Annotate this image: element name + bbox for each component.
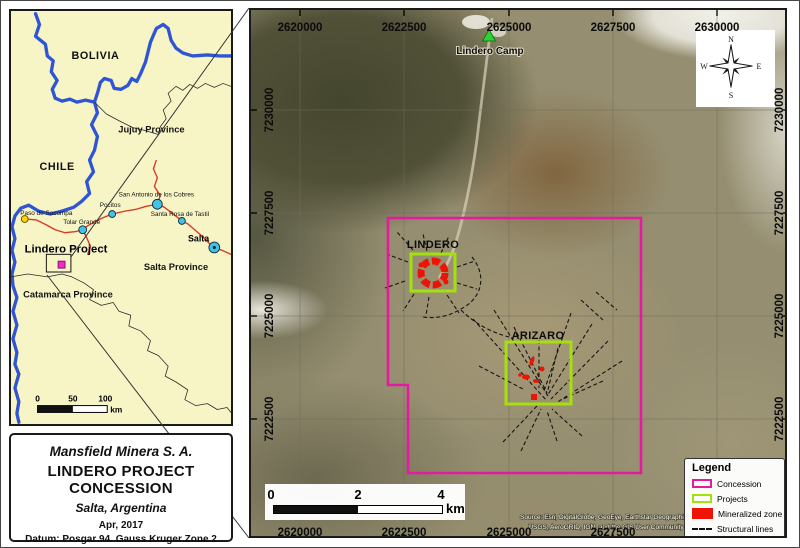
x-tick-bottom: 2620000 <box>278 527 323 538</box>
label-paso-de-socompa: Paso de Socompa <box>20 210 73 217</box>
compass-rose: N S E W <box>696 30 775 107</box>
compass-w: W <box>700 62 708 71</box>
inset-scale-100: 100 <box>98 394 112 404</box>
label-lindero: LINDERO <box>407 239 459 251</box>
legend: Legend Concession Projects Mineralized z… <box>684 458 785 538</box>
lindero-project-marker <box>58 261 65 268</box>
label-santa-rosa: Santa Rosa de Tastil <box>151 211 209 218</box>
inset-map-canvas: BOLIVIA CHILE Jujuy Province Salta Provi… <box>11 11 231 424</box>
label-chile: CHILE <box>39 161 74 173</box>
x-tick-top: 2625000 <box>487 22 532 34</box>
main-satellite-map: Source: Esri, DigitalGlobe, GeoEye, Eart… <box>249 8 787 538</box>
mineralized-speck <box>444 280 449 285</box>
y-tick-left: 7227500 <box>264 191 276 236</box>
scale-unit: km <box>446 501 465 516</box>
town-dot-santa-rosa <box>178 218 185 225</box>
label-pocitos: Pocitos <box>100 202 121 209</box>
border-chile-bolivia-line <box>36 14 231 102</box>
label-salta-city: Salta <box>188 234 209 244</box>
scalebar-track <box>273 505 443 514</box>
y-tick-right: 7227500 <box>774 191 786 236</box>
y-tick-left: 7222500 <box>264 397 276 442</box>
map-location: Salta, Argentina <box>11 501 231 515</box>
scalebar-fill <box>274 506 358 513</box>
inset-scalebar-fill <box>38 406 73 413</box>
x-tick-bottom: 2627500 <box>591 527 636 538</box>
label-tolar-grande: Tolar Grande <box>63 219 100 226</box>
label-bolivia: BOLIVIA <box>72 50 120 62</box>
town-dot-san-antonio <box>152 199 162 209</box>
map-title-line2: CONCESSION <box>11 480 231 497</box>
y-tick-right: 7225000 <box>774 294 786 339</box>
inset-scale-50: 50 <box>68 394 78 404</box>
company-name: Mansfield Minera S. A. <box>11 444 231 459</box>
x-tick-top: 2630000 <box>695 22 740 34</box>
label-jujuy-province: Jujuy Province <box>118 125 184 135</box>
mineralized-zone-swatch <box>692 508 713 519</box>
inset-scale-0: 0 <box>35 394 40 404</box>
city-dot-salta-ring <box>213 246 216 249</box>
label-lindero-camp: Lindero Camp <box>456 46 523 57</box>
legend-item: Structural lines <box>685 521 784 536</box>
structural-lines-swatch <box>692 528 712 530</box>
figure-lindero-concession-map: BOLIVIA CHILE Jujuy Province Salta Provi… <box>0 0 800 548</box>
label-san-antonio: San Antonio de los Cobres <box>119 191 195 198</box>
attribution-line1: Source: Esri, DigitalGlobe, GeoEye, Eart… <box>520 514 692 521</box>
label-arizaro: ARIZARO <box>512 330 565 342</box>
scale-0: 0 <box>265 487 277 502</box>
map-date: Apr, 2017 <box>11 520 231 531</box>
inset-scalebar: 0 50 100 km <box>35 394 122 415</box>
compass-e: E <box>757 62 762 71</box>
legend-item-label: Mineralized zone <box>718 509 782 519</box>
map-title-line1: LINDERO PROJECT <box>11 463 231 480</box>
x-tick-bottom: 2625000 <box>487 527 532 538</box>
compass-n: N <box>728 35 734 44</box>
y-tick-right: 7222500 <box>774 397 786 442</box>
legend-item: Projects <box>685 491 784 506</box>
scale-4: 4 <box>435 487 447 502</box>
inset-locator-map: BOLIVIA CHILE Jujuy Province Salta Provi… <box>9 9 233 426</box>
label-lindero-project: Lindero Project <box>25 243 108 255</box>
y-tick-right: 7230000 <box>774 88 786 133</box>
x-tick-top: 2620000 <box>278 22 323 34</box>
legend-item: Mineralized zone <box>685 506 784 521</box>
border-chile-argentina-line <box>12 102 97 422</box>
town-dot-tolar-grande <box>79 226 87 234</box>
mineralized-speck <box>419 263 424 268</box>
label-catamarca-province: Catamarca Province <box>23 290 113 300</box>
compass-s: S <box>729 91 733 100</box>
x-tick-bottom: 2622500 <box>382 527 427 538</box>
title-block: Mansfield Minera S. A. LINDERO PROJECT C… <box>9 433 233 542</box>
projects-swatch <box>692 494 712 503</box>
legend-item-label: Concession <box>717 479 761 489</box>
inset-scale-unit: km <box>110 404 122 414</box>
scale-2: 2 <box>352 487 364 502</box>
x-tick-top: 2622500 <box>382 22 427 34</box>
y-tick-left: 7230000 <box>264 88 276 133</box>
concession-swatch <box>692 479 712 488</box>
legend-item: Concession <box>685 476 784 491</box>
legend-title: Legend <box>685 459 784 476</box>
town-dot-pocitos <box>109 211 116 218</box>
map-datum: Datum: Posgar 94. Gauss Kruger Zone 2 <box>11 534 231 545</box>
legend-item-label: Structural lines <box>717 524 773 534</box>
map-scalebar: 0 2 4 km <box>265 484 465 520</box>
y-tick-left: 7225000 <box>264 294 276 339</box>
legend-item-label: Projects <box>717 494 748 504</box>
label-salta-province: Salta Province <box>144 262 208 272</box>
x-tick-top: 2627500 <box>591 22 636 34</box>
